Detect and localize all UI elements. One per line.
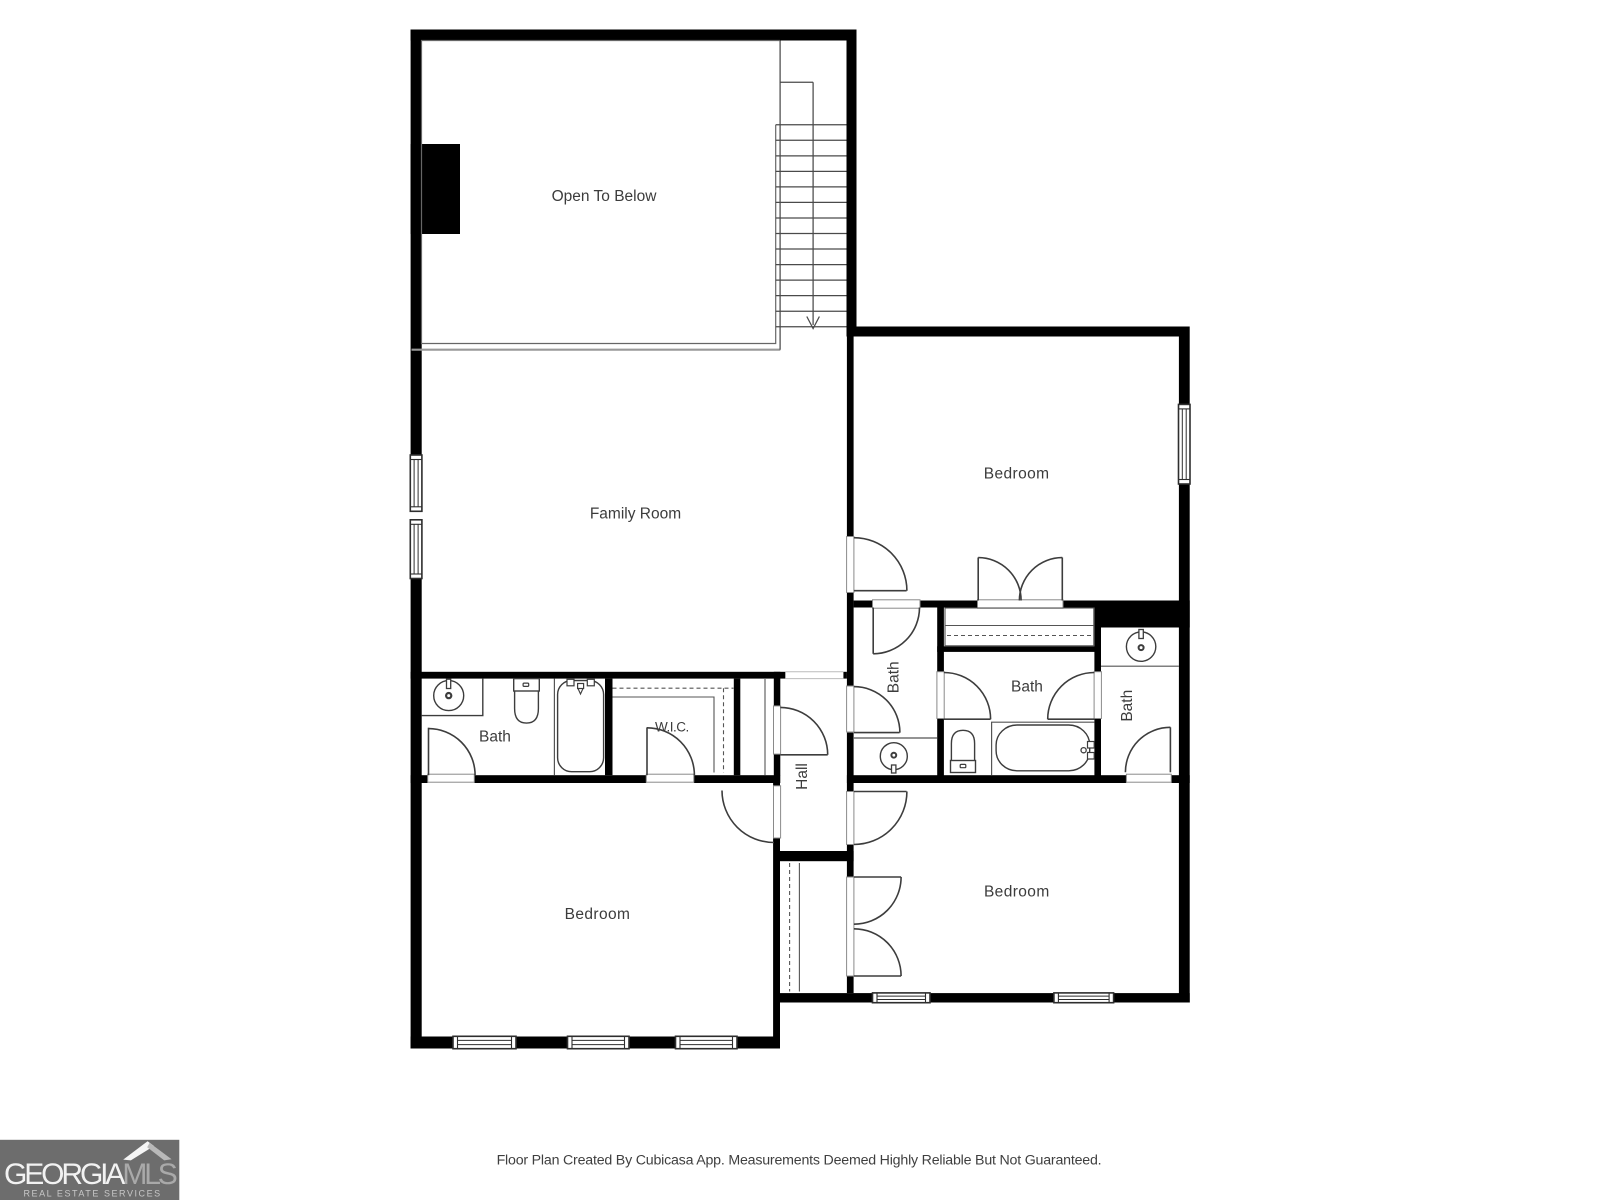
svg-text:Bath: Bath: [885, 661, 902, 693]
svg-text:Floor Plan Created By Cubicasa: Floor Plan Created By Cubicasa App. Meas…: [497, 1153, 1102, 1169]
svg-text:Bath: Bath: [1119, 690, 1136, 722]
svg-text:W.I.C.: W.I.C.: [655, 720, 689, 735]
svg-text:Family Room: Family Room: [590, 506, 681, 523]
svg-text:Bath: Bath: [1011, 678, 1043, 695]
svg-text:Bedroom: Bedroom: [984, 884, 1050, 901]
svg-text:Bath: Bath: [479, 729, 511, 746]
svg-text:GEORGIAMLS: GEORGIAMLS: [4, 1158, 177, 1191]
svg-text:REAL ESTATE SERVICES: REAL ESTATE SERVICES: [24, 1189, 162, 1199]
svg-text:Bedroom: Bedroom: [984, 465, 1050, 482]
svg-text:Open To Below: Open To Below: [552, 188, 658, 205]
svg-text:Hall: Hall: [794, 763, 811, 790]
svg-text:Bedroom: Bedroom: [565, 906, 631, 923]
